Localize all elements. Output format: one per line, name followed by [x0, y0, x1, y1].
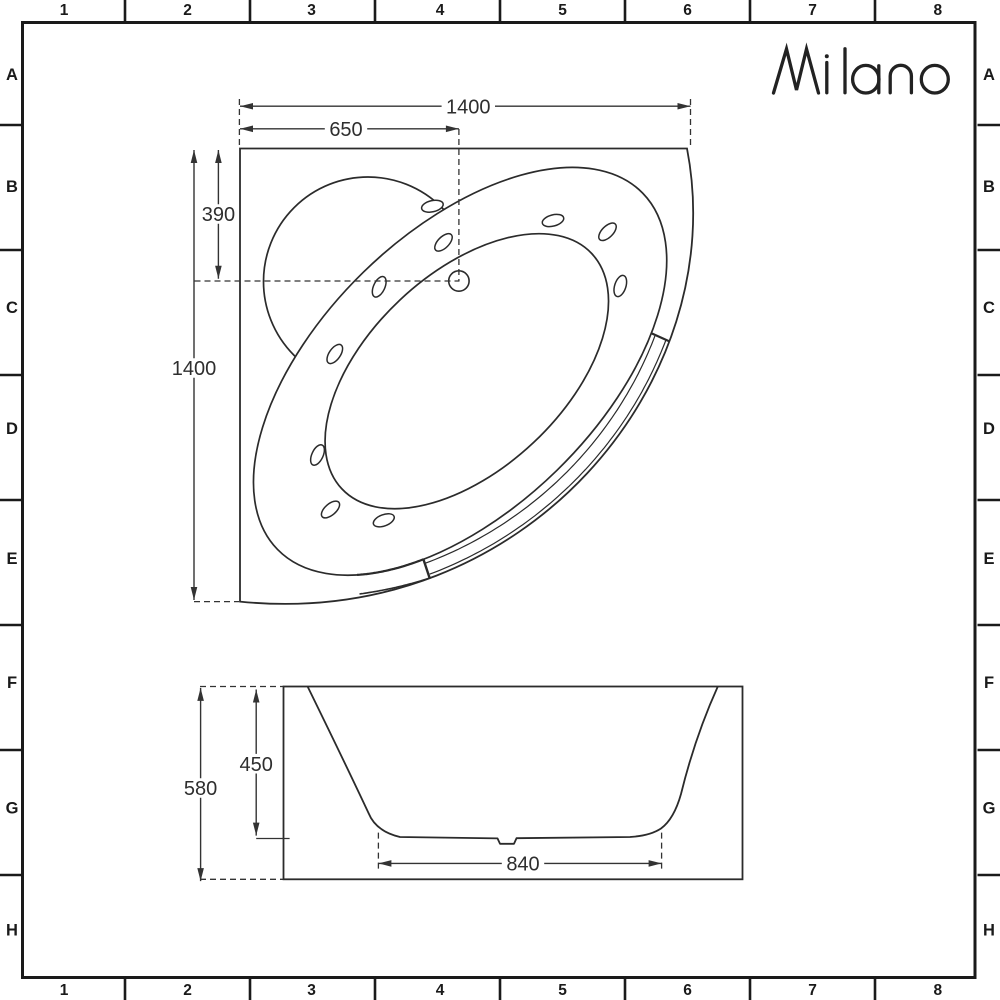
svg-text:H: H	[983, 921, 995, 939]
svg-text:B: B	[6, 178, 18, 196]
svg-text:390: 390	[202, 204, 235, 226]
svg-text:G: G	[6, 799, 19, 817]
svg-text:2: 2	[183, 982, 192, 999]
svg-text:1: 1	[60, 2, 69, 19]
svg-text:F: F	[984, 674, 994, 692]
svg-text:A: A	[6, 66, 18, 84]
svg-text:A: A	[983, 66, 995, 84]
svg-text:G: G	[983, 799, 996, 817]
svg-text:F: F	[7, 674, 17, 692]
svg-text:C: C	[983, 299, 995, 317]
svg-text:E: E	[6, 550, 17, 568]
svg-text:650: 650	[329, 119, 362, 141]
svg-text:C: C	[6, 299, 18, 317]
svg-text:8: 8	[933, 982, 942, 999]
svg-text:2: 2	[183, 2, 192, 19]
svg-text:4: 4	[436, 982, 445, 999]
svg-text:8: 8	[933, 2, 942, 19]
svg-text:840: 840	[506, 854, 539, 876]
svg-text:B: B	[983, 178, 995, 196]
svg-text:1400: 1400	[172, 358, 217, 380]
svg-text:4: 4	[436, 2, 445, 19]
svg-text:450: 450	[240, 754, 273, 776]
svg-text:1: 1	[60, 982, 69, 999]
svg-text:7: 7	[808, 2, 817, 19]
svg-text:1400: 1400	[446, 97, 491, 119]
svg-text:D: D	[6, 420, 18, 438]
svg-text:3: 3	[307, 982, 316, 999]
svg-text:580: 580	[184, 778, 217, 800]
svg-text:E: E	[983, 550, 994, 568]
svg-text:D: D	[983, 420, 995, 438]
svg-text:7: 7	[808, 982, 817, 999]
svg-text:5: 5	[558, 982, 567, 999]
svg-text:3: 3	[307, 2, 316, 19]
svg-text:H: H	[6, 921, 18, 939]
svg-text:5: 5	[558, 2, 567, 19]
svg-text:6: 6	[683, 982, 692, 999]
svg-text:6: 6	[683, 2, 692, 19]
